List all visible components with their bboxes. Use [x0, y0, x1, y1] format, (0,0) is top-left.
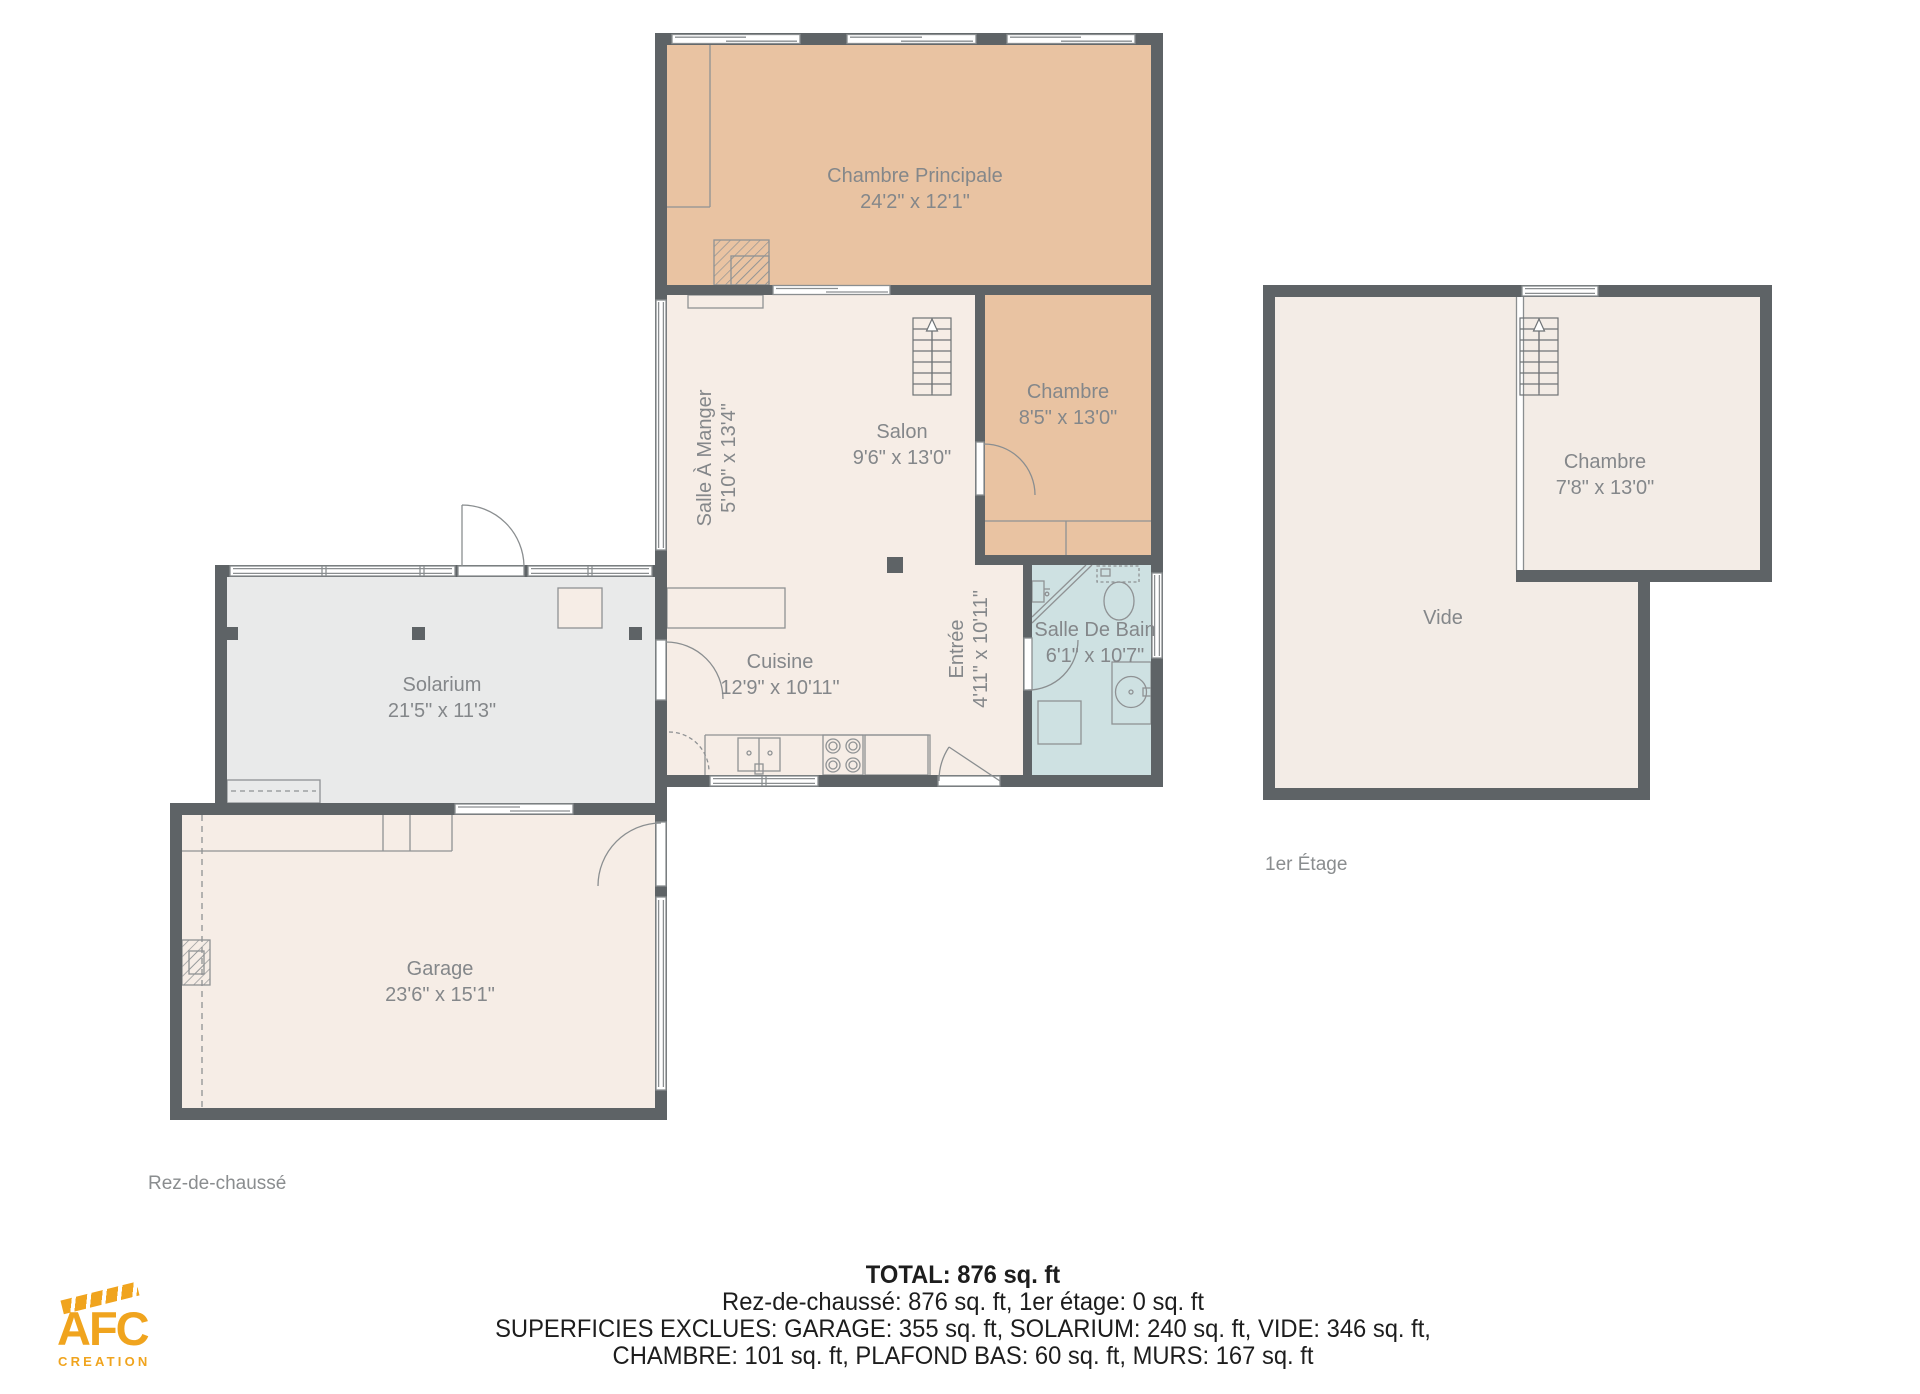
room-dims-chambre-principale: 24'2" x 12'1": [860, 191, 970, 213]
room-dims-salle-a-manger: 5'10" x 13'4": [718, 403, 740, 513]
support-post: [182, 940, 210, 985]
counter: [667, 588, 785, 628]
summary-floors: Rez-de-chaussé: 876 sq. ft, 1er étage: 0…: [407, 1289, 1519, 1316]
room-label-salle-de-bain: Salle De Bain: [1034, 619, 1155, 641]
first-floor-title: 1er Étage: [1265, 854, 1347, 876]
room-label-salle-a-manger: Salle À Manger: [693, 389, 716, 526]
sliding-door: [455, 804, 573, 814]
window: [1152, 573, 1162, 658]
sliding-door: [773, 286, 890, 295]
summary-excluded-2: CHAMBRE: 101 sq. ft, PLAFOND BAS: 60 sq.…: [407, 1343, 1519, 1370]
room-label-salon: Salon: [876, 421, 927, 443]
room-dims-salon: 9'6" x 13'0": [853, 447, 952, 469]
summary-total: TOTAL: 876 sq. ft: [407, 1262, 1519, 1289]
window: [1522, 286, 1598, 296]
room-dims-chambre-first: 7'8" x 13'0": [1556, 477, 1655, 499]
summary-excluded-1: SUPERFICIES EXCLUES: GARAGE: 355 sq. ft,…: [407, 1316, 1519, 1343]
floorplan-page: { "colors": { "wall": "#5e6366", "room_t…: [0, 0, 1920, 1394]
room-label-entree: Entrée: [946, 620, 968, 679]
area-summary: TOTAL: 876 sq. ft Rez-de-chaussé: 876 sq…: [407, 1262, 1519, 1370]
room-label-cuisine: Cuisine: [747, 651, 814, 673]
ground-floor-title: Rez-de-chaussé: [148, 1173, 286, 1195]
room-dims-entree: 4'11" x 10'11": [970, 590, 992, 708]
floor-plan-canvas: Chambre Principale 24'2" x 12'1" Salle À…: [0, 0, 1920, 1394]
window: [710, 776, 818, 786]
column: [887, 557, 903, 573]
cabinet: [688, 295, 763, 308]
room-label-chambre-principale: Chambre Principale: [827, 165, 1003, 187]
window: [672, 35, 1135, 44]
table: [558, 588, 602, 628]
room-label-vide: Vide: [1423, 607, 1463, 629]
fireplace: [714, 240, 769, 285]
post: [629, 627, 642, 640]
room-label-chambre-first: Chambre: [1564, 451, 1646, 473]
post: [412, 627, 425, 640]
room-label-garage: Garage: [407, 958, 474, 980]
post: [225, 627, 238, 640]
first-floor-plan: [1263, 285, 1772, 800]
room-dims-garage: 23'6" x 15'1": [385, 984, 495, 1006]
logo-subtitle: CREATION: [58, 1354, 151, 1369]
garage-door: [656, 897, 666, 1090]
room-label-chambre: Chambre: [1027, 381, 1109, 403]
room-dims-cuisine: 12'9" x 10'11": [720, 677, 839, 699]
room-dims-salle-de-bain: 6'1" x 10'7": [1046, 645, 1145, 667]
afc-creation-logo: AFC CREATION: [57, 1283, 167, 1388]
room-dims-chambre: 8'5" x 13'0": [1019, 407, 1118, 429]
window: [230, 566, 652, 576]
room-label-solarium: Solarium: [403, 674, 482, 696]
logo-title: AFC: [57, 1301, 148, 1356]
window: [656, 300, 666, 550]
room-chambre-first: [1524, 297, 1760, 570]
room-dims-solarium: 21'5" x 11'3": [388, 700, 496, 722]
